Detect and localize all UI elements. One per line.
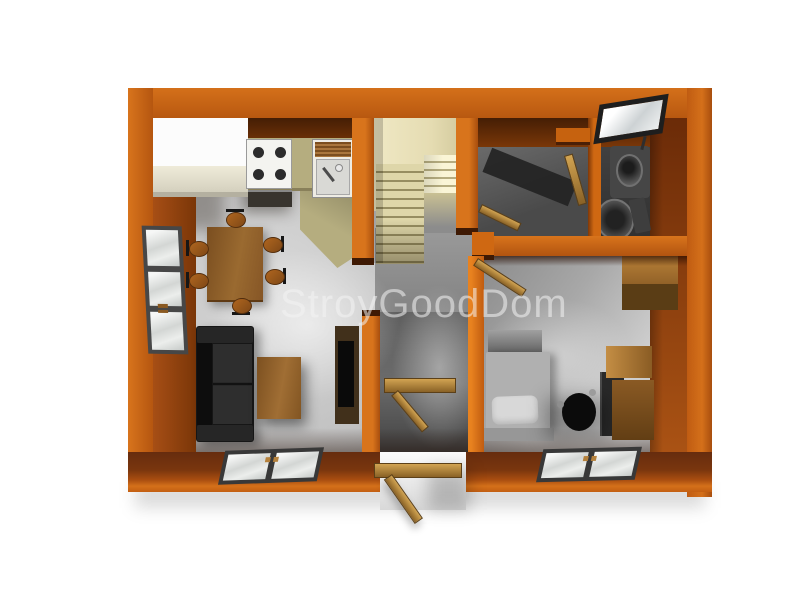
bed-footboard: [482, 428, 554, 441]
stair-left-shadow: [374, 115, 383, 263]
sofa-backrest: [197, 343, 212, 425]
stair-flight: [376, 164, 424, 264]
watermark-text: StroyGoodDom: [280, 282, 568, 327]
wall-kitchen-stairs: [352, 115, 374, 265]
fridge: [150, 112, 248, 166]
window-pane: [271, 451, 319, 478]
stove: [246, 139, 292, 189]
chair-seat: [226, 212, 246, 228]
window-handle: [583, 456, 589, 461]
chair-seat: [232, 298, 252, 314]
window-pane: [589, 451, 637, 477]
dining-chair: [186, 239, 208, 257]
office-chair-seat: [562, 393, 596, 431]
wardrobe: [606, 346, 652, 378]
window-pane: [146, 230, 180, 267]
chair-seat: [189, 273, 209, 289]
vestibule-beam: [384, 378, 456, 393]
fridge-front: [150, 166, 248, 192]
window-handle: [158, 304, 168, 308]
window-handle: [158, 310, 168, 313]
living-room-window: [218, 447, 324, 484]
window-pane: [223, 453, 271, 480]
chair-seat: [189, 241, 209, 257]
left-wall-window: [142, 226, 189, 355]
sofa-cushions: [213, 344, 252, 424]
tv-stand: [335, 326, 359, 424]
stove-burner: [275, 147, 286, 158]
window-pane: [148, 272, 182, 307]
bed-head-cabinet: [488, 330, 542, 354]
stove-burner: [253, 169, 264, 180]
sofa-armrest: [197, 425, 253, 441]
oven-front: [248, 190, 292, 207]
washbasin-bowl: [616, 154, 643, 187]
window-pane: [150, 312, 184, 351]
chair-seat: [263, 237, 283, 253]
floor-plan-render: StroyGoodDom: [0, 0, 800, 600]
wall-vestibule-left: [362, 310, 380, 455]
office-chair: [556, 388, 602, 436]
dining-chair: [224, 209, 246, 227]
office-chair-armrest: [589, 389, 596, 396]
sofa: [196, 326, 254, 442]
window-handle: [265, 457, 271, 462]
faucet-knob: [335, 164, 343, 172]
dining-chair: [262, 235, 284, 253]
stove-burner: [275, 169, 286, 180]
sofa-armrest: [197, 327, 253, 343]
fridge-base: [150, 192, 248, 197]
stove-burner: [253, 147, 264, 158]
dish-rack: [315, 142, 351, 157]
tv-screen: [338, 341, 354, 407]
wardrobe: [612, 380, 654, 440]
bedroom-window: [536, 447, 642, 483]
kitchen-sink-unit: [312, 139, 354, 198]
pillow: [492, 395, 539, 425]
wall-main-horizontal: [476, 236, 688, 256]
dining-chair: [186, 271, 208, 289]
wall-main-shadow: [476, 256, 688, 266]
outer-wall-right: [687, 88, 712, 497]
coffee-table: [257, 357, 301, 419]
office-chair-armrest: [557, 401, 564, 408]
wall-bathroom-stub: [556, 128, 590, 145]
dining-table: [207, 227, 263, 302]
window-pane: [541, 452, 589, 478]
wardrobe-front: [622, 284, 678, 310]
dining-chair: [230, 297, 252, 315]
wall-stairs-right: [456, 115, 478, 235]
